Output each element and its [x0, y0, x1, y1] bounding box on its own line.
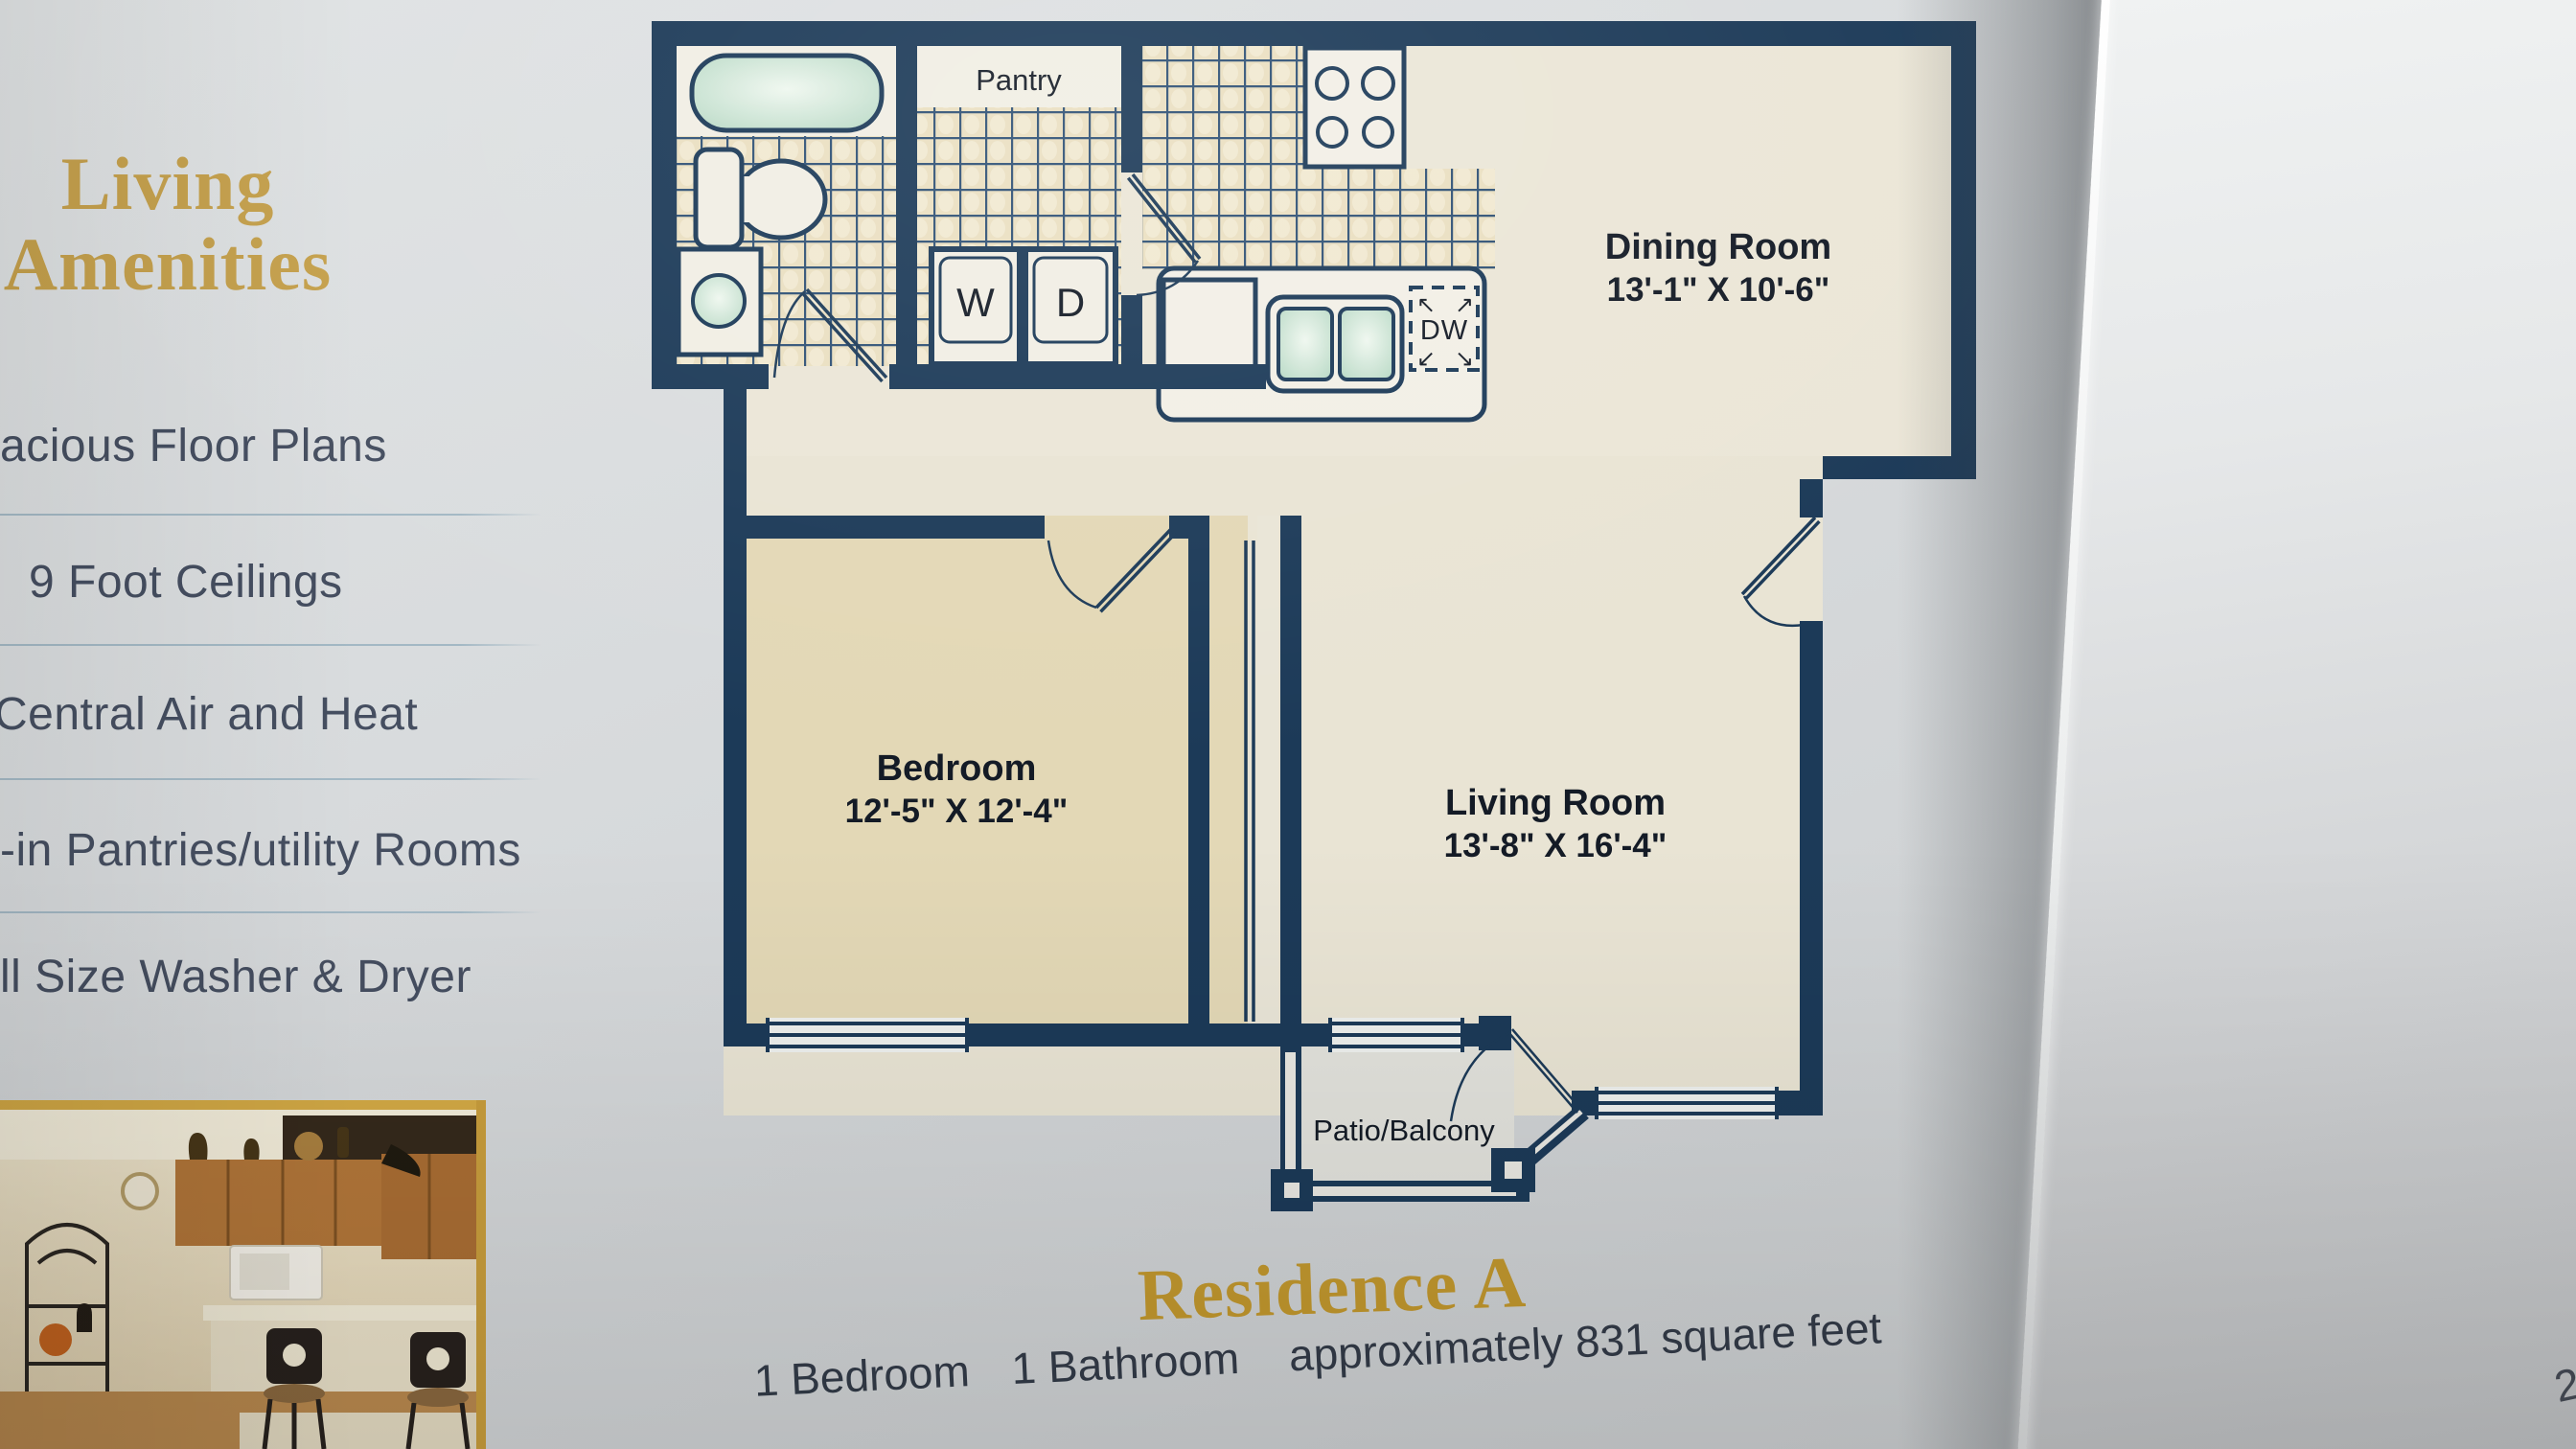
patio-label: Patio/Balcony: [1313, 1114, 1495, 1147]
burner-icon: [1364, 118, 1392, 147]
refrigerator: [1163, 280, 1255, 368]
photo-border-top: [0, 1100, 486, 1110]
amenities-heading-line2: Amenities: [0, 224, 355, 305]
laundry-appliances: W D: [931, 249, 1115, 364]
stove: [1305, 48, 1404, 167]
sink-basin-right: [1340, 309, 1393, 379]
wall-closet-left: [1188, 516, 1209, 1023]
photo-bottle: [77, 1303, 92, 1332]
living-room-window: [1596, 1087, 1778, 1119]
expand-arrow-icon: ↙: [1416, 346, 1436, 372]
photo-border-right: [476, 1100, 486, 1449]
dryer-label: D: [1056, 280, 1085, 325]
photo-counter: [203, 1305, 476, 1321]
amenity-item-washer-dryer: ll Size Washer & Dryer: [0, 951, 471, 1003]
toilet-tank: [696, 149, 742, 247]
divider: [0, 911, 541, 913]
bathroom-sink: [693, 275, 745, 327]
amenity-item-floor-plans: acious Floor Plans: [0, 420, 387, 472]
burner-icon: [1317, 68, 1347, 99]
expand-arrow-icon: ↖: [1416, 292, 1436, 318]
wall-left: [652, 21, 677, 389]
wall-right-lower: [1800, 621, 1823, 1115]
kitchen-tile-floor: [1142, 46, 1305, 269]
sink-basin-left: [1278, 309, 1332, 379]
wall-right-upper: [1951, 21, 1976, 479]
bathroom-count: 1 Bathroom: [1010, 1332, 1240, 1394]
bedroom-dimensions: 12'-5" X 12'-4": [845, 793, 1069, 830]
wall-bedroom-top: [724, 516, 1045, 539]
kitchen-photo: [0, 1100, 486, 1449]
pantry-label: Pantry: [976, 63, 1062, 97]
expand-arrow-icon: ↗: [1455, 292, 1474, 318]
patio-window: [1329, 1018, 1463, 1052]
expand-arrow-icon: ↘: [1455, 346, 1474, 372]
wall-closet-right: [1280, 516, 1301, 1023]
divider: [0, 778, 541, 780]
divider: [0, 514, 541, 516]
wall-top: [652, 21, 1976, 46]
living-room-dimensions: 13'-8" X 16'-4": [1444, 827, 1667, 864]
page-number: 2: [2550, 1357, 2576, 1413]
photo-plate: [39, 1323, 72, 1356]
wall-bath-pantry: [896, 46, 917, 364]
bedroom-count: 1 Bedroom: [753, 1345, 971, 1407]
amenity-item-ceilings: 9 Foot Ceilings: [29, 556, 343, 609]
amenities-heading-line1: Living: [0, 144, 355, 224]
dining-room-dimensions: 13'-1" X 10'-6": [1607, 271, 1830, 309]
dining-room-label: Dining Room: [1605, 227, 1831, 267]
wall-step: [1823, 456, 1976, 479]
brochure-page: Living Amenities acious Floor Plans 9 Fo…: [0, 0, 2576, 1449]
washer-label: W: [956, 280, 995, 325]
divider: [0, 644, 541, 646]
dishwasher-label: DW: [1420, 315, 1468, 346]
amenities-heading: Living Amenities: [0, 144, 355, 305]
amenity-item-air-heat: Central Air and Heat: [0, 688, 418, 741]
burner-icon: [1318, 118, 1346, 147]
photo-wall-clock: [123, 1174, 157, 1208]
photo-cabinets: [175, 1154, 476, 1259]
wall-bedroom-left: [724, 389, 747, 1046]
bathtub: [692, 56, 882, 130]
bedroom-window: [767, 1018, 968, 1052]
amenity-item-pantries: -in Pantries/utility Rooms: [0, 824, 521, 877]
living-room-label: Living Room: [1445, 783, 1666, 823]
burner-icon: [1363, 68, 1393, 99]
floor-plan: ↖ ↗ ↙ ↘ DW: [623, 8, 2003, 1263]
bedroom-label: Bedroom: [877, 748, 1037, 789]
